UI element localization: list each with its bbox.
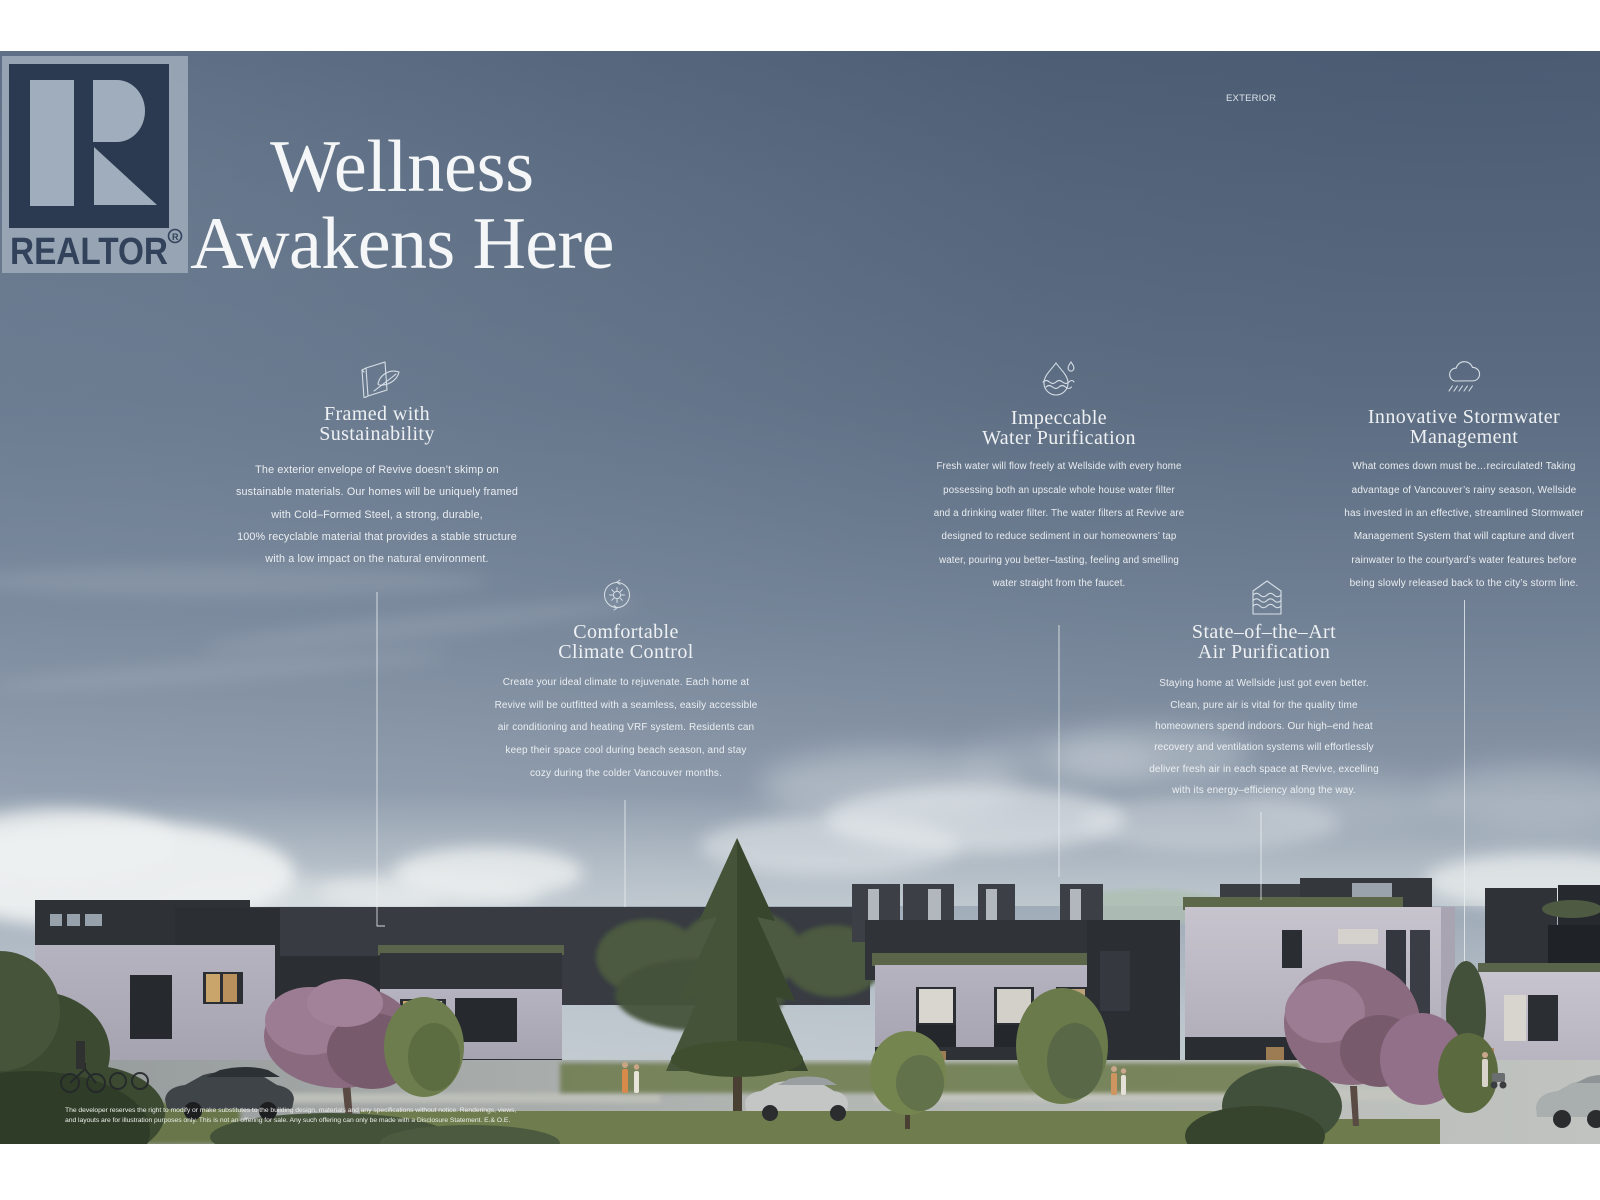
svg-text:REALTOR: REALTOR <box>10 231 168 273</box>
svg-text:R: R <box>172 232 179 242</box>
